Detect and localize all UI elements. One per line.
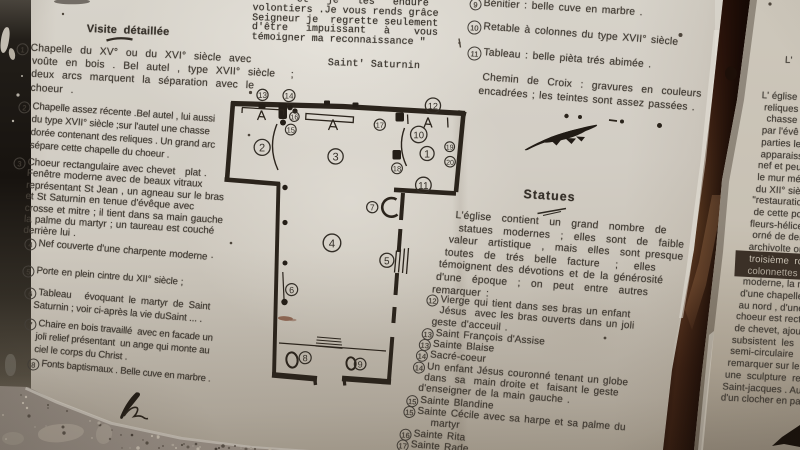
svg-text:18: 18 [393,164,401,173]
svg-text:11: 11 [418,181,429,192]
svg-text:4: 4 [329,238,336,250]
svg-text:2: 2 [259,142,265,154]
svg-text:8: 8 [303,353,308,363]
svg-text:15: 15 [287,126,295,135]
svg-text:19: 19 [446,144,454,151]
svg-text:17: 17 [376,121,384,130]
svg-text:6: 6 [289,285,294,295]
svg-text:12: 12 [428,101,438,111]
svg-text:9: 9 [358,360,363,370]
svg-text:3: 3 [332,151,338,163]
svg-text:7: 7 [370,202,375,212]
svg-text:1: 1 [424,149,430,161]
svg-text:5: 5 [384,256,390,267]
svg-text:20: 20 [446,160,454,167]
svg-text:10: 10 [413,130,424,141]
svg-text:16: 16 [290,114,298,121]
